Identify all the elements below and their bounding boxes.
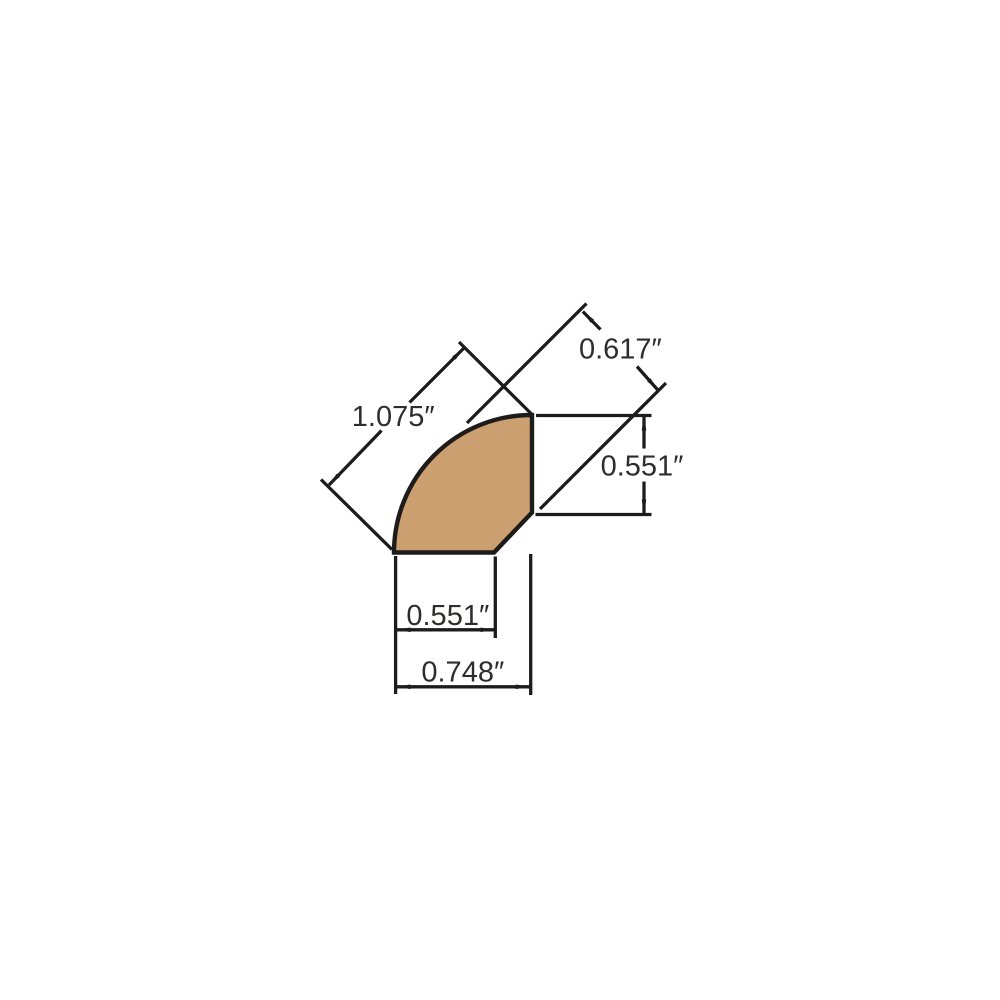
svg-text:0.748″: 0.748″ bbox=[421, 656, 504, 688]
svg-text:0.551″: 0.551″ bbox=[601, 451, 684, 483]
svg-text:0.551″: 0.551″ bbox=[406, 600, 489, 632]
svg-text:1.075″: 1.075″ bbox=[352, 401, 435, 433]
svg-text:0.617″: 0.617″ bbox=[579, 334, 662, 366]
